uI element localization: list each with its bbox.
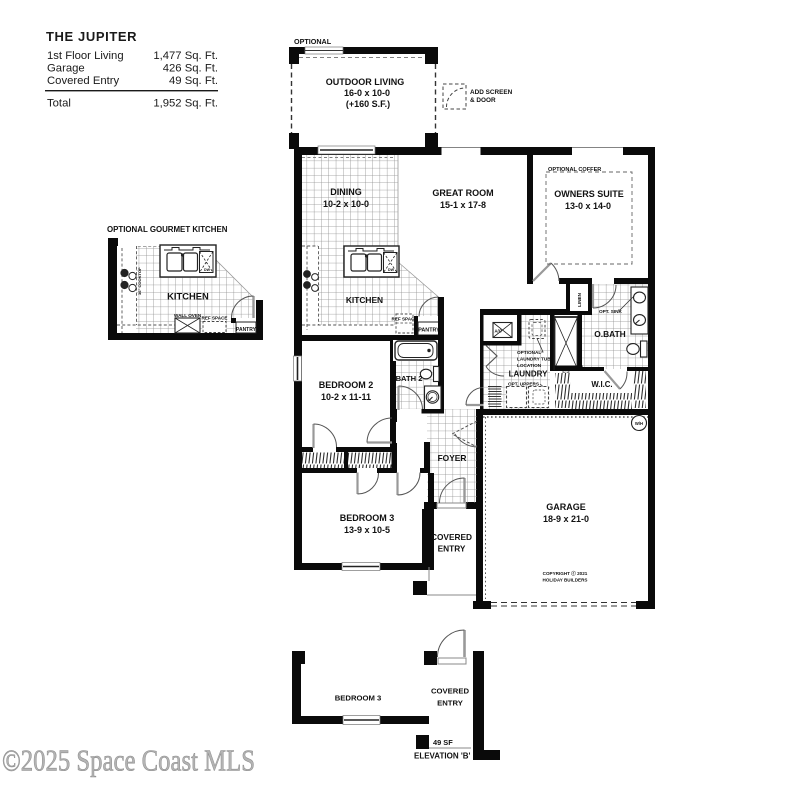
svg-text:1st Floor Living: 1st Floor Living [47, 50, 124, 62]
svg-text:REF SPACE: REF SPACE [202, 316, 228, 321]
svg-text:DINING: DINING [330, 187, 362, 197]
svg-text:49 SF: 49 SF [433, 738, 453, 747]
svg-text:W/H: W/H [635, 421, 643, 426]
svg-text:OPTIONAL COFFER: OPTIONAL COFFER [548, 167, 601, 173]
svg-text:THE JUPITER: THE JUPITER [46, 29, 137, 44]
svg-text:OPT. UPPERS: OPT. UPPERS [508, 382, 539, 387]
svg-text:(+160 S.F.): (+160 S.F.) [346, 99, 390, 109]
svg-text:OPT. SINK: OPT. SINK [599, 309, 623, 314]
svg-text:LAUNDRY TUB: LAUNDRY TUB [517, 357, 551, 362]
svg-text:13-9 x 10-5: 13-9 x 10-5 [344, 525, 390, 535]
svg-text:49 Sq. Ft.: 49 Sq. Ft. [169, 75, 218, 87]
svg-text:15-1 x 17-8: 15-1 x 17-8 [440, 200, 486, 210]
svg-text:HOLIDAY BUILDERS: HOLIDAY BUILDERS [543, 578, 588, 583]
svg-text:OWNERS SUITE: OWNERS SUITE [554, 189, 624, 199]
svg-text:KITCHEN: KITCHEN [167, 291, 209, 302]
svg-text:10-2 x 10-0: 10-2 x 10-0 [323, 199, 369, 209]
svg-text:16-0 x 10-0: 16-0 x 10-0 [344, 88, 390, 98]
svg-text:W.I.C.: W.I.C. [591, 380, 612, 389]
svg-text:BEDROOM 3: BEDROOM 3 [335, 694, 382, 703]
svg-text:Covered Entry: Covered Entry [47, 75, 120, 87]
svg-text:COPYRIGHT ⓒ 2021: COPYRIGHT ⓒ 2021 [543, 570, 588, 577]
svg-text:LAUNDRY: LAUNDRY [509, 370, 548, 379]
svg-text:Garage: Garage [47, 63, 85, 75]
svg-text:OUTDOOR LIVING: OUTDOOR LIVING [326, 77, 405, 87]
svg-text:PANTRY: PANTRY [418, 328, 440, 334]
svg-text:LOCATION: LOCATION [517, 363, 542, 368]
svg-text:Total: Total [47, 98, 71, 110]
svg-text:ELEVATION 'B': ELEVATION 'B' [414, 752, 470, 761]
svg-text:ENTRY: ENTRY [438, 544, 466, 554]
svg-text:GARAGE: GARAGE [546, 502, 586, 512]
svg-text:DW: DW [204, 268, 211, 272]
svg-text:BEDROOM 2: BEDROOM 2 [319, 380, 374, 390]
svg-text:ENTRY: ENTRY [437, 699, 463, 708]
svg-text:FOYER: FOYER [438, 453, 467, 463]
svg-text:KITCHEN: KITCHEN [346, 295, 383, 305]
svg-text:WALL OVEN: WALL OVEN [174, 313, 202, 318]
svg-text:ADD SCREEN: ADD SCREEN [470, 89, 513, 96]
svg-text:REF SPACE: REF SPACE [392, 317, 418, 322]
svg-text:COVERED: COVERED [431, 687, 469, 696]
svg-text:13-0 x 14-0: 13-0 x 14-0 [565, 201, 611, 211]
svg-text:DW: DW [388, 268, 395, 272]
svg-text:COVERED: COVERED [431, 532, 472, 542]
svg-text:& DOOR: & DOOR [470, 97, 496, 104]
svg-text:10-2 x 11-11: 10-2 x 11-11 [321, 392, 371, 402]
svg-text:OPTIONAL: OPTIONAL [294, 37, 332, 46]
svg-text:36" COOKTOP: 36" COOKTOP [137, 267, 142, 295]
svg-text:©2025 Space Coast MLS: ©2025 Space Coast MLS [2, 743, 255, 778]
svg-text:18-9 x 21-0: 18-9 x 21-0 [543, 514, 589, 524]
svg-text:PANTRY: PANTRY [236, 327, 257, 333]
svg-text:OPTIONAL GOURMET KITCHEN: OPTIONAL GOURMET KITCHEN [107, 225, 228, 234]
svg-text:A/C: A/C [495, 329, 502, 334]
svg-text:BATH 2: BATH 2 [396, 374, 423, 383]
svg-text:1,952 Sq. Ft.: 1,952 Sq. Ft. [153, 98, 218, 110]
svg-text:GREAT ROOM: GREAT ROOM [432, 188, 493, 198]
svg-text:OPTIONAL: OPTIONAL [517, 350, 541, 355]
svg-text:BEDROOM 3: BEDROOM 3 [340, 513, 395, 523]
svg-text:O.BATH: O.BATH [594, 329, 625, 339]
svg-text:426 Sq. Ft.: 426 Sq. Ft. [163, 63, 218, 75]
svg-text:LINEN: LINEN [577, 292, 582, 306]
svg-text:1,477 Sq. Ft.: 1,477 Sq. Ft. [153, 50, 218, 62]
